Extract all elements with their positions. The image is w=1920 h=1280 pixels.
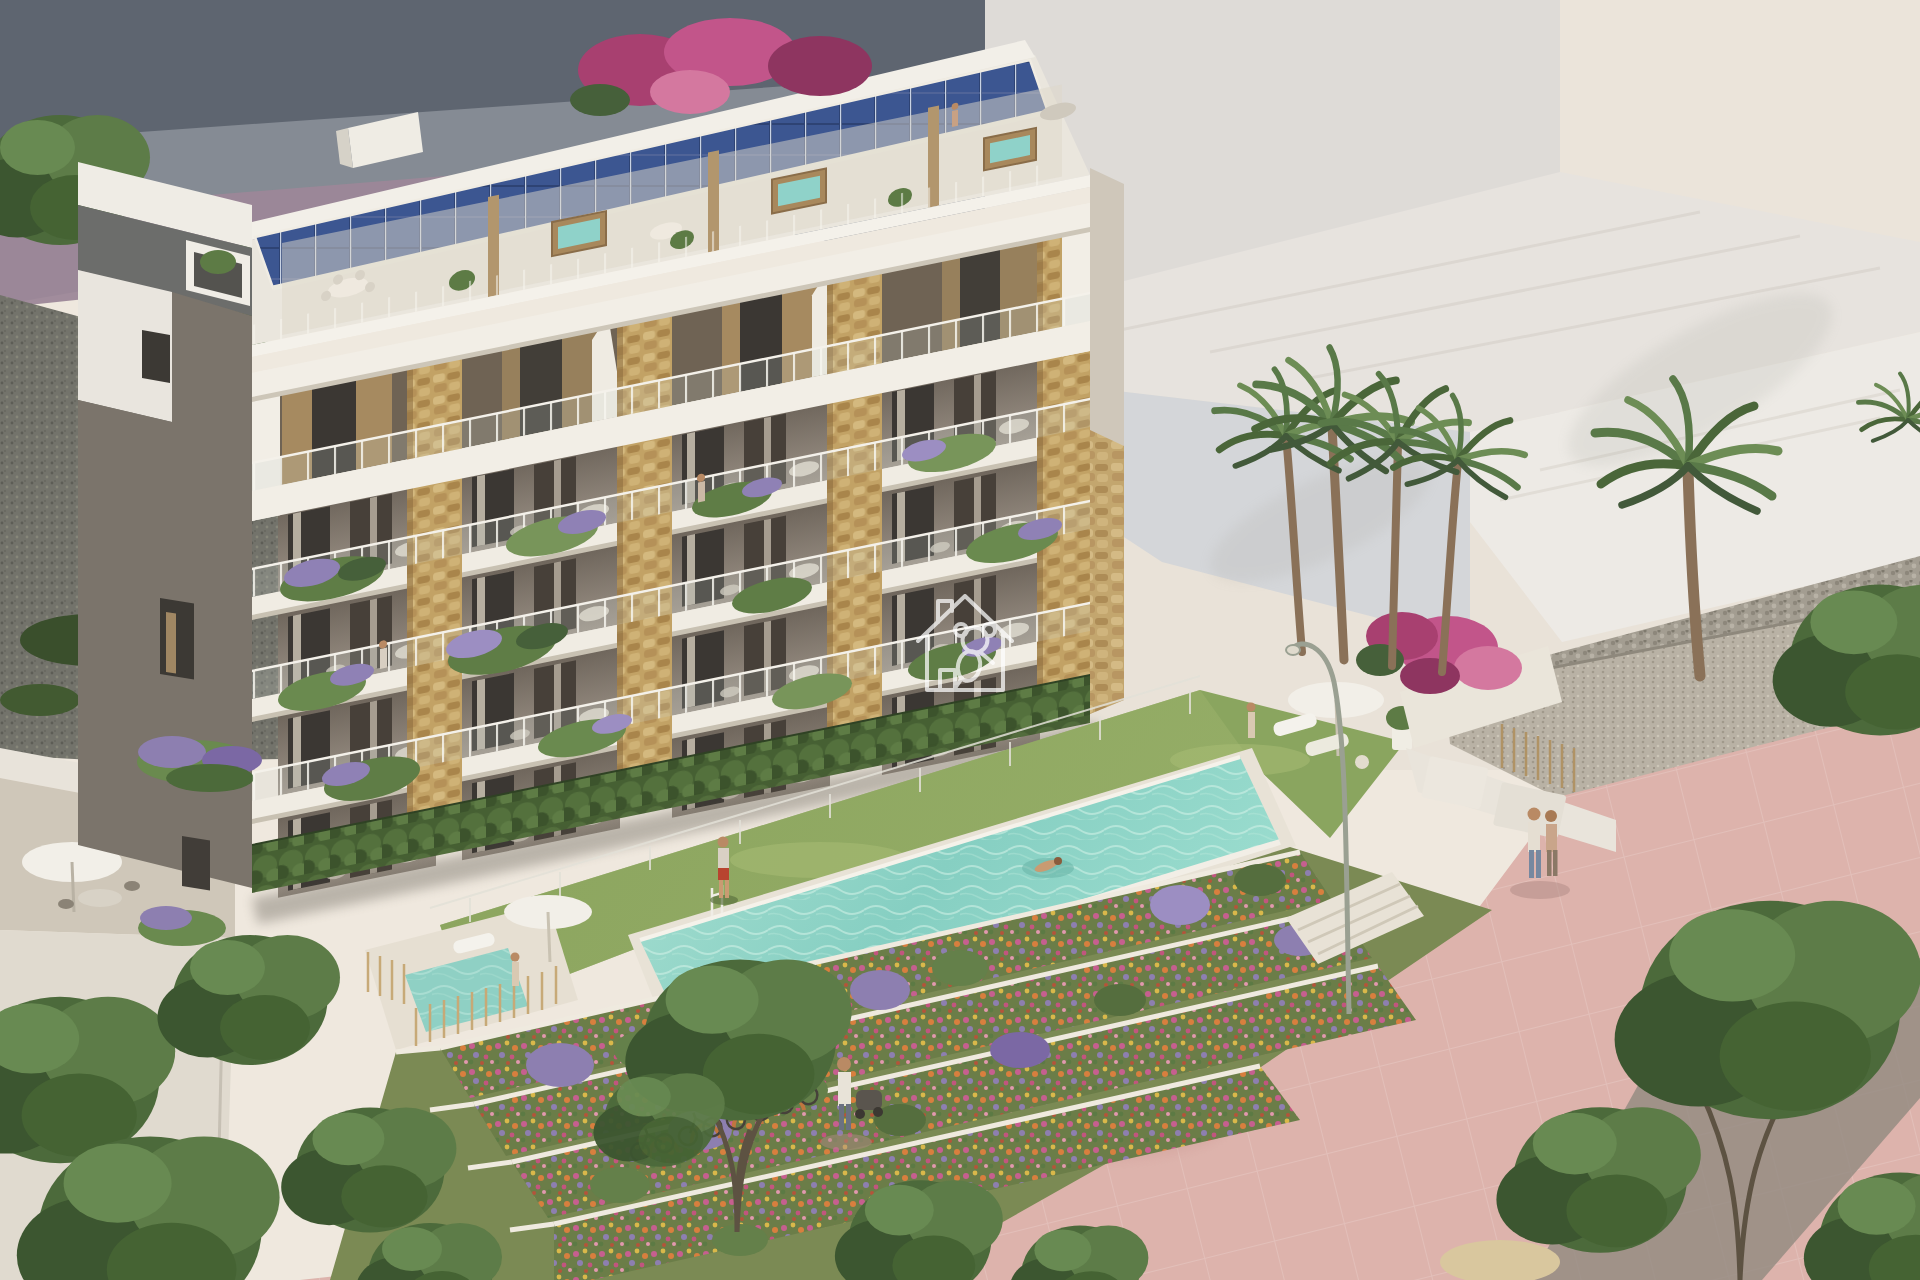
rooftop-person — [952, 110, 958, 127]
render-canvas — [0, 0, 1920, 1280]
plunge-pool-person — [512, 962, 519, 986]
lawn-person — [1248, 712, 1255, 738]
gable-wall — [78, 162, 262, 946]
